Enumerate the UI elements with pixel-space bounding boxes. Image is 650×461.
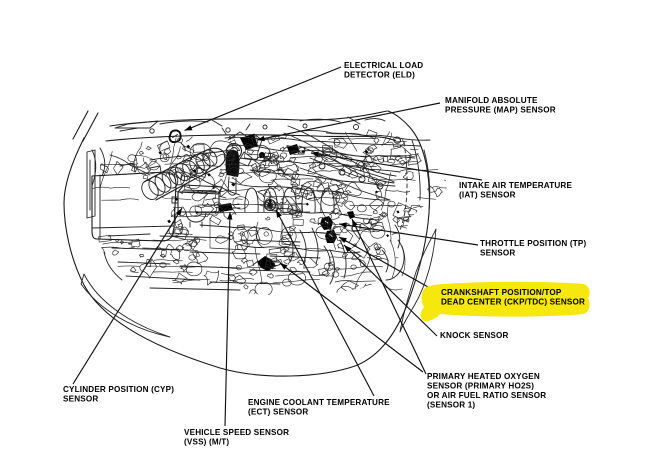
svg-text:ENGINE COOLANT TEMPERATURE(ECT: ENGINE COOLANT TEMPERATURE(ECT) SENSOR: [248, 398, 390, 417]
svg-text:CYLINDER POSITION (CYP)SENSOR: CYLINDER POSITION (CYP)SENSOR: [63, 385, 174, 404]
svg-text:VEHICLE SPEED SENSOR(VSS) (M/T: VEHICLE SPEED SENSOR(VSS) (M/T): [184, 428, 289, 447]
svg-text:MANIFOLD ABSOLUTEPRESSURE (MAP: MANIFOLD ABSOLUTEPRESSURE (MAP) SENSOR: [445, 96, 556, 115]
svg-text:INTAKE AIR TEMPERATURE(IAT) SE: INTAKE AIR TEMPERATURE(IAT) SENSOR: [459, 181, 572, 200]
svg-text:ELECTRICAL LOADDETECTOR (ELD): ELECTRICAL LOADDETECTOR (ELD): [344, 61, 423, 80]
svg-text:PRIMARY HEATED OXYGENSENSOR (P: PRIMARY HEATED OXYGENSENSOR (PRIMARY HO2…: [427, 372, 546, 410]
svg-text:THROTTLE POSITION (TP)SENSOR: THROTTLE POSITION (TP)SENSOR: [480, 239, 587, 258]
svg-text:KNOCK SENSOR: KNOCK SENSOR: [440, 331, 509, 340]
